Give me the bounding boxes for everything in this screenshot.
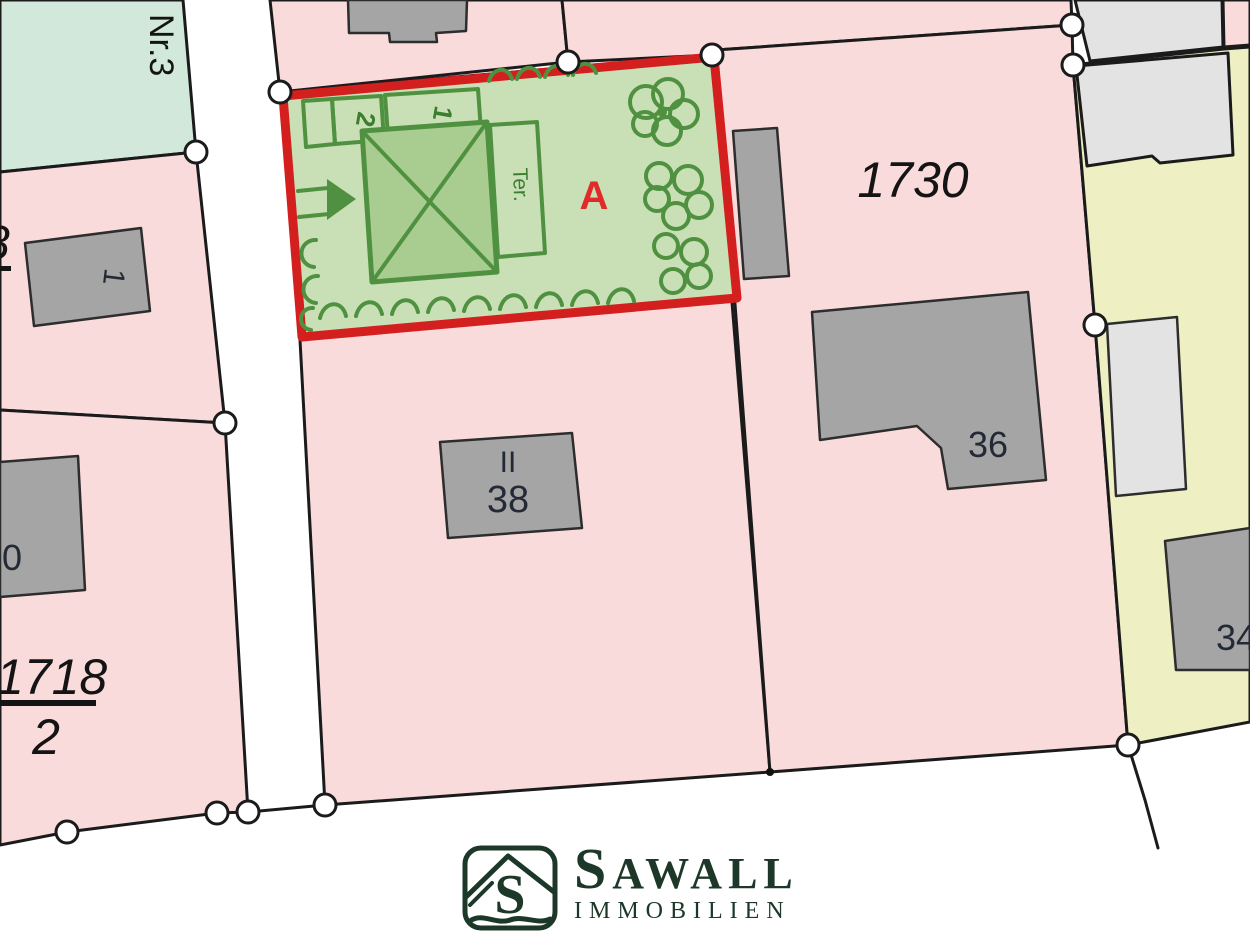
boundary-dot (766, 768, 774, 776)
boundary-marker (1061, 14, 1083, 36)
sawall-logo: S SAWALL IMMOBILIEN (462, 845, 799, 931)
parcel-gray-northeast-lower (1076, 53, 1233, 166)
cadastral-map: Nr.3 1730 1718 2 8 1 0 II 38 36 34 A 2 1… (0, 0, 1250, 850)
logo-name-rest: AWALL (612, 849, 799, 898)
logo-subtitle: IMMOBILIEN (574, 898, 799, 925)
boundary-marker (1084, 314, 1106, 336)
label-storeys-II: II (500, 446, 517, 479)
boundary-marker (185, 141, 207, 163)
boundary-marker (269, 81, 291, 103)
cadastral-map-screenshot: Nr.3 1730 1718 2 8 1 0 II 38 36 34 A 2 1… (0, 0, 1250, 937)
logo-name: SAWALL (574, 845, 799, 898)
fraction-bar-1718 (0, 700, 96, 706)
boundary-marker (214, 412, 236, 434)
boundary-marker (557, 51, 579, 73)
logo-name-initial: S (574, 836, 612, 901)
boundary-marker (1117, 734, 1139, 756)
boundary-marker (56, 821, 78, 843)
label-house-38: 38 (487, 479, 529, 521)
label-house-34: 34 (1216, 617, 1250, 658)
sawall-logo-icon: S (462, 845, 558, 931)
roof-inner-line (470, 883, 492, 905)
label-parcel-1730: 1730 (857, 152, 968, 208)
tree-center-dot (657, 107, 667, 117)
logo-text: SAWALL IMMOBILIEN (574, 845, 799, 925)
boundary-marker (701, 44, 723, 66)
label-area-A: A (580, 174, 609, 218)
label-building-zero: 0 (2, 537, 22, 578)
boundary-marker (1062, 54, 1084, 76)
boundary-marker (314, 794, 336, 816)
label-partial-left-edge: 8 (0, 217, 10, 270)
boundary-marker (237, 801, 259, 823)
label-parcel-1718: 1718 (0, 649, 107, 705)
boundary-segment-southeast (1128, 745, 1158, 848)
label-parcel-1718-denominator: 2 (31, 709, 60, 765)
parcel-pink-ne-corner (1223, 0, 1250, 47)
label-nr3: Nr.3 (142, 14, 180, 76)
label-house-36: 36 (968, 424, 1008, 465)
wave-icon (470, 918, 550, 921)
boundary-marker (206, 802, 228, 824)
fraction-bar-partial (0, 266, 11, 271)
building-light-yellow-parcel (1107, 317, 1186, 496)
building-one (25, 228, 150, 326)
label-sketch-terrace: Ter. (508, 167, 532, 202)
